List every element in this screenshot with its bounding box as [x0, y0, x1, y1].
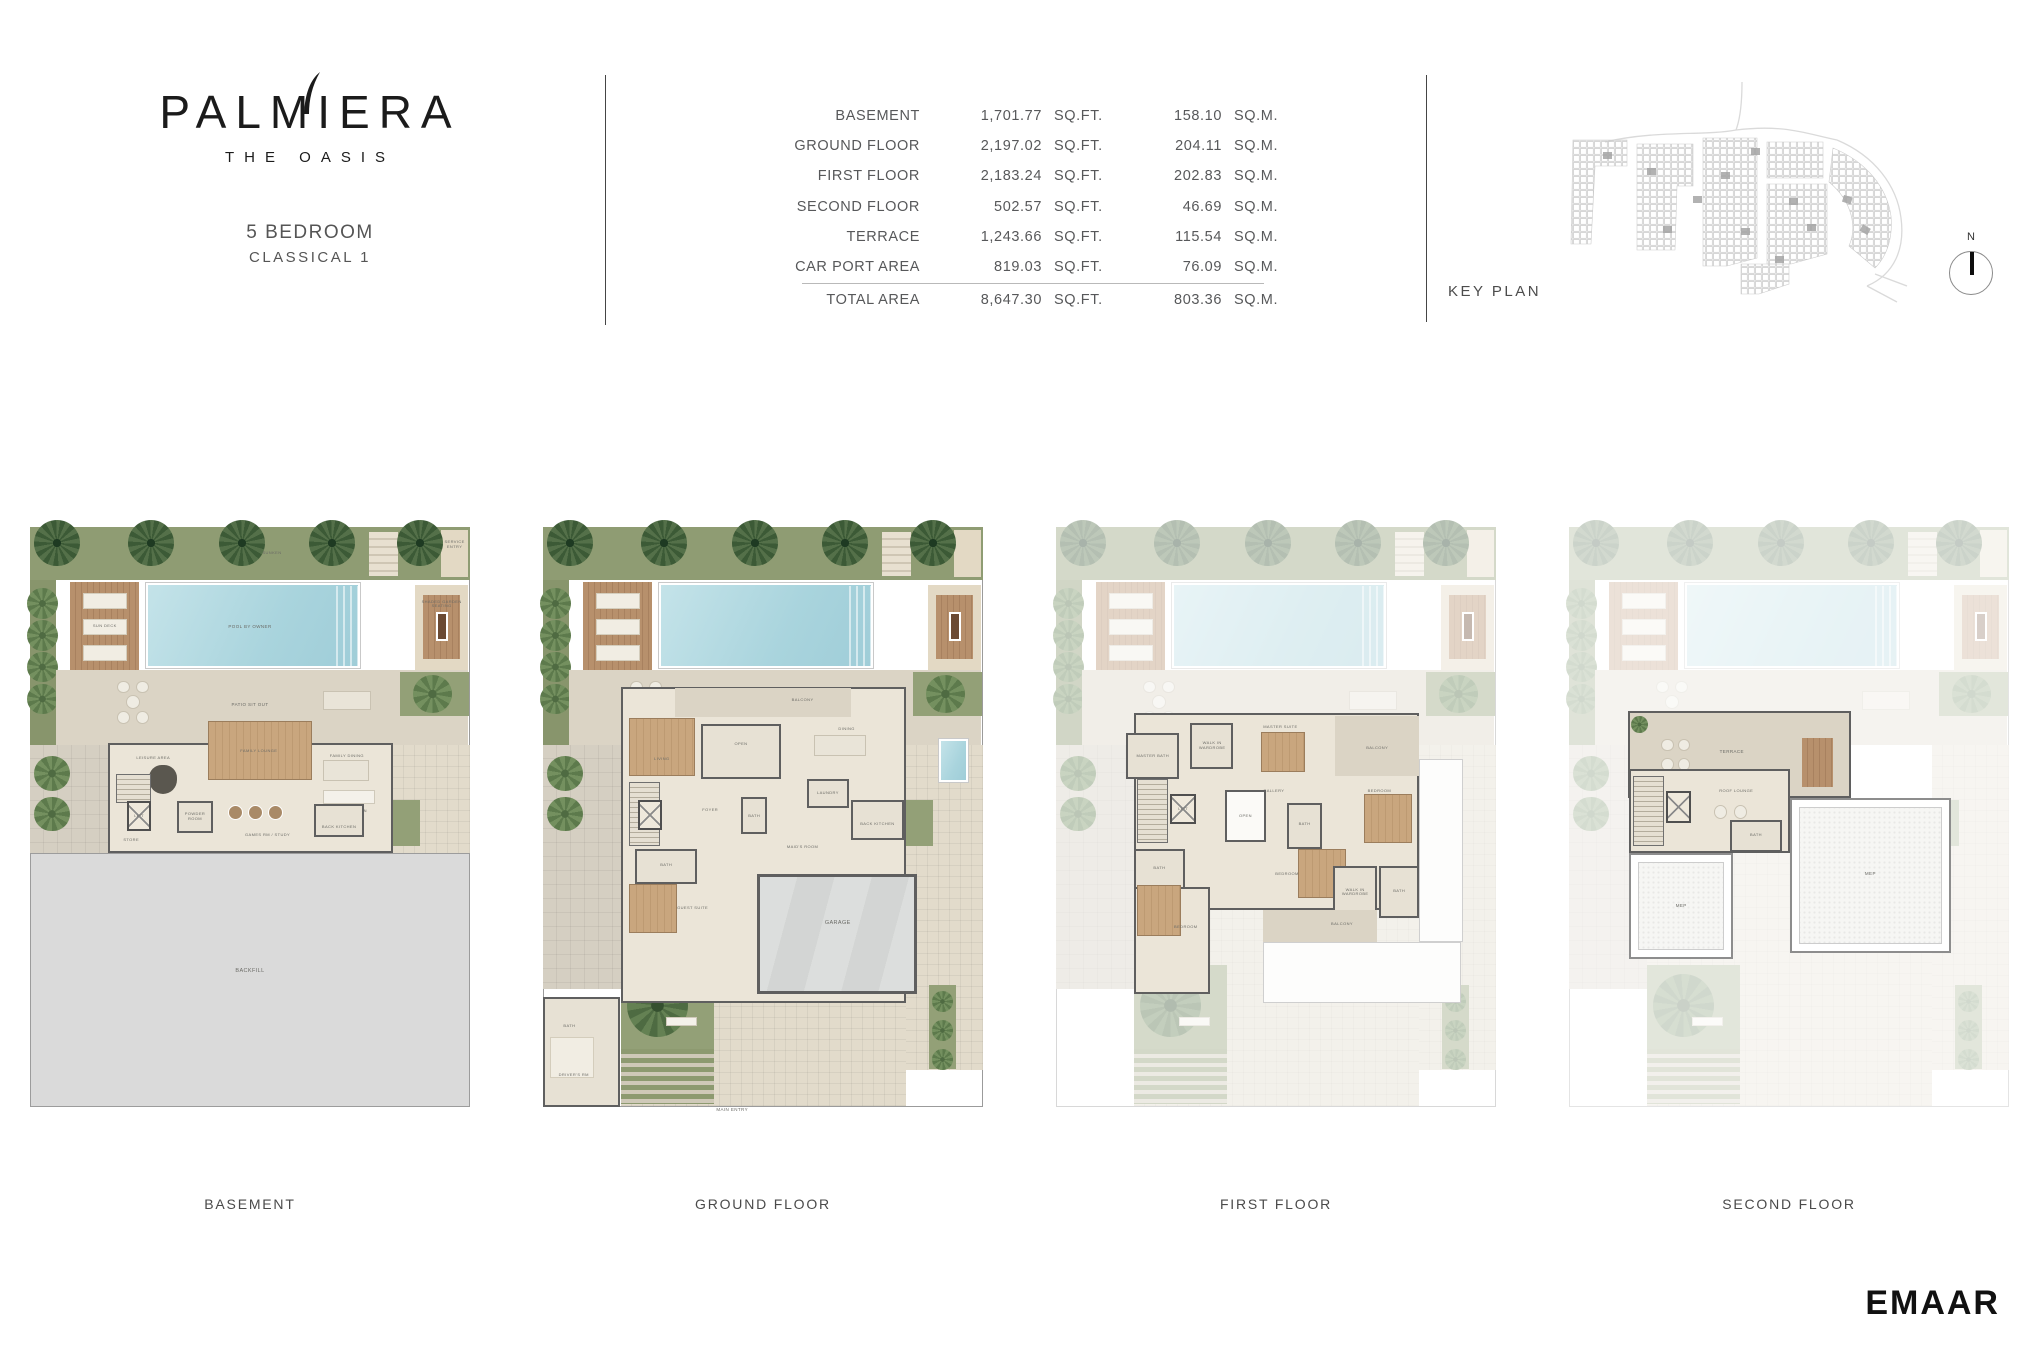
- label-pool: POOL BY OWNER: [206, 619, 294, 634]
- label-family-lounge: FAMILY LOUNGE: [224, 743, 294, 758]
- label-open: OPEN: [1225, 808, 1266, 823]
- area-sqft: 1,243.66: [920, 229, 1042, 245]
- bedroom-bed: [1364, 794, 1412, 843]
- floorplan-caption: FIRST FLOOR: [1056, 1196, 1496, 1212]
- terrace-dining-table: [1802, 738, 1833, 787]
- label-bath-mid-text: BATH: [1287, 817, 1322, 832]
- label-lift: LIFT: [1170, 803, 1196, 815]
- area-sqft-unit: SQ.FT.: [1042, 229, 1134, 245]
- compass-needle: [1970, 252, 1974, 275]
- label-guest-suite: GUEST SUITE: [662, 901, 724, 916]
- area-sqm: 158.10: [1134, 108, 1222, 124]
- area-sqft: 8,647.30: [920, 292, 1042, 308]
- label-back-kitchen: BACK KITCHEN: [314, 819, 365, 834]
- label-guest-suite-text: GUEST SUITE: [662, 901, 724, 916]
- floorplan-caption: BASEMENT: [30, 1196, 470, 1212]
- label-drivers-room: DRIVER'S RM: [547, 1068, 600, 1083]
- label-store-text: STORE: [111, 833, 151, 848]
- vertical-divider: [605, 75, 606, 325]
- label-mep-left: MEP: [1657, 898, 1705, 913]
- label-open: OPEN: [719, 737, 763, 752]
- staircase: [1633, 776, 1664, 846]
- label-shaded-seating: SHADED GARDEN SEATING: [415, 590, 467, 619]
- label-lift-text: LIFT: [127, 811, 152, 823]
- label-bath-right-text: BATH: [1382, 884, 1417, 899]
- label-balcony: BALCONY: [772, 693, 834, 708]
- unit-variant: CLASSICAL 1: [120, 249, 500, 266]
- lift: [638, 800, 663, 830]
- label-walk-in-2: WALK IN WARDROBE: [1335, 878, 1375, 907]
- label-bath-text: BATH: [1734, 827, 1778, 842]
- label-bath-left: BATH: [1137, 861, 1181, 876]
- area-label: FIRST FLOOR: [640, 168, 920, 184]
- area-row: FIRST FLOOR 2,183.24 SQ.FT. 202.83 SQ.M.: [640, 161, 1294, 191]
- label-annex-bath-text: BATH: [547, 1019, 591, 1034]
- area-label: SECOND FLOOR: [640, 199, 920, 215]
- label-roof-lounge-text: ROOF LOUNGE: [1701, 784, 1771, 799]
- label-bedroom-left: BEDROOM: [1157, 920, 1214, 935]
- staircase: [1137, 779, 1168, 843]
- area-label: GROUND FLOOR: [640, 138, 920, 154]
- label-games-room: GAMES RM / STUDY: [224, 827, 312, 842]
- label-leisure-area-text: LEISURE AREA: [118, 751, 188, 766]
- dining-table: [323, 760, 369, 781]
- core-layer: SUNKENSERVICE ENTRYSUN DECKPOOL BY OWNER…: [30, 527, 470, 1107]
- label-bath-text: BATH: [741, 808, 767, 823]
- area-row: CAR PORT AREA 819.03 SQ.FT. 76.09 SQ.M.: [640, 252, 1294, 282]
- label-sun-deck-text: SUN DECK: [81, 619, 129, 634]
- label-powder-room-text: POWDER ROOM: [177, 808, 212, 825]
- label-terrace: TERRACE: [1701, 744, 1763, 759]
- unit-block: 5 BEDROOM CLASSICAL 1: [120, 222, 500, 266]
- area-sqft-unit: SQ.FT.: [1042, 108, 1134, 124]
- core-layer: TERRACEROOF LOUNGEBATHMEPMEP: [1569, 527, 2009, 1107]
- vertical-divider: [1426, 75, 1427, 322]
- core-layer: BALCONYMASTER BATHWALK IN WARDROBEMASTER…: [1056, 527, 1496, 1107]
- floorplan-canvas-basement: SUNKENSERVICE ENTRYSUN DECKPOOL BY OWNER…: [30, 527, 470, 1107]
- area-sqft: 1,701.77: [920, 108, 1042, 124]
- roof-terrace: [1263, 942, 1461, 1003]
- area-label: CAR PORT AREA: [640, 259, 920, 275]
- area-sqm-unit: SQ.M.: [1222, 108, 1294, 124]
- label-roof-lounge: ROOF LOUNGE: [1701, 784, 1771, 799]
- unit-type: 5 BEDROOM: [120, 222, 500, 244]
- label-balcony: BALCONY: [1351, 740, 1404, 755]
- floorplan-canvas-ground-floor: BALCONYLIVINGOPENDININGFOYERLAUNDRYBATHM…: [543, 527, 983, 1107]
- label-living-text: LIVING: [633, 752, 690, 767]
- label-bath-left-text: BATH: [1137, 861, 1181, 876]
- key-plan-map: [1545, 78, 1925, 308]
- label-laundry-text: LAUNDRY: [807, 786, 849, 801]
- core-layer: BALCONYLIVINGOPENDININGFOYERLAUNDRYBATHM…: [543, 527, 983, 1107]
- area-sqft-unit: SQ.FT.: [1042, 199, 1134, 215]
- north-compass-icon: [1949, 251, 1993, 295]
- label-guest-bath: BATH: [635, 858, 697, 873]
- table-separator: [802, 283, 1264, 284]
- floorplan-caption: GROUND FLOOR: [543, 1196, 983, 1212]
- label-lift-text: LIFT: [1170, 803, 1196, 815]
- label-bath: BATH: [741, 808, 767, 823]
- master-bed: [1261, 732, 1305, 773]
- area-sqft: 819.03: [920, 259, 1042, 275]
- roof-band: [1419, 759, 1463, 942]
- label-store: STORE: [111, 833, 151, 848]
- label-foyer-text: FOYER: [684, 803, 737, 818]
- label-balcony-text: BALCONY: [1351, 740, 1404, 755]
- floorplan-basement: SUNKENSERVICE ENTRYSUN DECKPOOL BY OWNER…: [30, 527, 470, 1107]
- area-sqft: 502.57: [920, 199, 1042, 215]
- label-terrace-text: TERRACE: [1701, 744, 1763, 759]
- area-sqm: 803.36: [1134, 292, 1222, 308]
- label-guest-bath-text: BATH: [635, 858, 697, 873]
- label-leisure-area: LEISURE AREA: [118, 751, 188, 766]
- area-row: GROUND FLOOR 2,197.02 SQ.FT. 204.11 SQ.M…: [640, 131, 1294, 161]
- label-master-suite-text: MASTER SUITE: [1247, 720, 1313, 735]
- area-label: TOTAL AREA: [640, 292, 920, 308]
- area-sqm: 202.83: [1134, 168, 1222, 184]
- label-sunken: SUNKEN: [241, 546, 303, 561]
- area-sqm-unit: SQ.M.: [1222, 292, 1294, 308]
- area-sqft-unit: SQ.FT.: [1042, 138, 1134, 154]
- area-sqm-unit: SQ.M.: [1222, 259, 1294, 275]
- developer-logo: EMAAR: [1865, 1284, 2000, 1323]
- label-mep-left-text: MEP: [1657, 898, 1705, 913]
- label-patio: PATIO SIT OUT: [206, 697, 294, 712]
- area-sqft-unit: SQ.FT.: [1042, 168, 1134, 184]
- leaf-icon: [301, 72, 321, 114]
- brand-block: PALMIERA THE OASIS 5 BEDROOM CLASSICAL 1: [120, 85, 500, 266]
- label-bath-right: BATH: [1382, 884, 1417, 899]
- label-patio-text: PATIO SIT OUT: [206, 697, 294, 712]
- label-shaded-seating-text: SHADED GARDEN SEATING: [415, 590, 467, 619]
- label-walk-in-text: WALK IN WARDROBE: [1192, 731, 1232, 760]
- area-sqm: 115.54: [1134, 229, 1222, 245]
- label-bedroom-right: BEDROOM: [1351, 783, 1408, 798]
- logo-title: PALMIERA: [120, 85, 500, 139]
- label-mep-right-text: MEP: [1846, 866, 1894, 881]
- label-balcony-rear-text: BALCONY: [1311, 917, 1373, 932]
- label-mep-right: MEP: [1846, 866, 1894, 881]
- label-lift: LIFT: [127, 811, 152, 823]
- piano: [149, 765, 178, 794]
- label-open-text: OPEN: [1225, 808, 1266, 823]
- area-table: BASEMENT 1,701.77 SQ.FT. 158.10 SQ.M. GR…: [640, 101, 1294, 315]
- label-bedroom-mid: BEDROOM: [1258, 866, 1315, 881]
- floorplan-ground-floor: BALCONYLIVINGOPENDININGFOYERLAUNDRYBATHM…: [543, 527, 983, 1107]
- label-master-bath: MASTER BATH: [1129, 749, 1177, 764]
- label-powder-room: POWDER ROOM: [177, 808, 212, 825]
- floorplan-canvas-first-floor: BALCONYMASTER BATHWALK IN WARDROBEMASTER…: [1056, 527, 1496, 1107]
- label-master-suite: MASTER SUITE: [1247, 720, 1313, 735]
- area-total-row: TOTAL AREA 8,647.30 SQ.FT. 803.36 SQ.M.: [640, 285, 1294, 315]
- area-sqm-unit: SQ.M.: [1222, 168, 1294, 184]
- floorplan-caption: SECOND FLOOR: [1569, 1196, 2009, 1212]
- label-sun-deck: SUN DECK: [81, 619, 129, 634]
- label-bath: BATH: [1734, 827, 1778, 842]
- label-master-bath-text: MASTER BATH: [1129, 749, 1177, 764]
- area-sqm-unit: SQ.M.: [1222, 229, 1294, 245]
- label-living: LIVING: [633, 752, 690, 767]
- label-back-kitchen-text: BACK KITCHEN: [314, 819, 365, 834]
- staircase: [116, 774, 151, 803]
- logo-subtitle: THE OASIS: [120, 149, 500, 166]
- area-sqm: 76.09: [1134, 259, 1222, 275]
- area-sqm: 204.11: [1134, 138, 1222, 154]
- floorplan-second-floor: TERRACEROOF LOUNGEBATHMEPMEP SECOND FLOO…: [1569, 527, 2009, 1107]
- label-walk-in-2-text: WALK IN WARDROBE: [1335, 878, 1375, 907]
- label-backfill-text: BACKFILL: [184, 962, 316, 979]
- label-backfill: BACKFILL: [184, 962, 316, 979]
- label-games-room-text: GAMES RM / STUDY: [224, 827, 312, 842]
- plunge-pool: [939, 739, 968, 783]
- kitchen-island: [323, 790, 376, 804]
- area-sqm-unit: SQ.M.: [1222, 199, 1294, 215]
- label-back-kitchen: BACK KITCHEN: [851, 814, 904, 835]
- area-sqft-unit: SQ.FT.: [1042, 292, 1134, 308]
- label-family-lounge-text: FAMILY LOUNGE: [224, 743, 294, 758]
- label-balcony-rear: BALCONY: [1311, 917, 1373, 932]
- area-sqm-unit: SQ.M.: [1222, 138, 1294, 154]
- dining-table: [814, 735, 867, 756]
- brochure-page: PALMIERA THE OASIS 5 BEDROOM CLASSICAL 1…: [0, 0, 2040, 1360]
- label-main-entry-text: MAIN ENTRY: [688, 1102, 776, 1117]
- label-bedroom-left-text: BEDROOM: [1157, 920, 1214, 935]
- label-bedroom-mid-text: BEDROOM: [1258, 866, 1315, 881]
- label-annex-bath: BATH: [547, 1019, 591, 1034]
- label-sunken-text: SUNKEN: [241, 546, 303, 561]
- area-sqft: 2,197.02: [920, 138, 1042, 154]
- label-drivers-room-text: DRIVER'S RM: [547, 1068, 600, 1083]
- lift: [1666, 791, 1692, 823]
- backfill-area: [30, 853, 470, 1107]
- key-plan-label: KEY PLAN: [1448, 283, 1541, 300]
- label-pool-text: POOL BY OWNER: [206, 619, 294, 634]
- label-laundry: LAUNDRY: [807, 786, 849, 801]
- label-balcony-text: BALCONY: [772, 693, 834, 708]
- floorplan-canvas-second-floor: TERRACEROOF LOUNGEBATHMEPMEP: [1569, 527, 2009, 1107]
- label-main-entry: MAIN ENTRY: [688, 1102, 776, 1117]
- label-maids-room: MAID'S ROOM: [772, 840, 834, 855]
- label-maids-room-text: MAID'S ROOM: [772, 840, 834, 855]
- label-open-text: OPEN: [719, 737, 763, 752]
- area-row: BASEMENT 1,701.77 SQ.FT. 158.10 SQ.M.: [640, 101, 1294, 131]
- label-garage: GARAGE: [798, 914, 877, 931]
- area-label: BASEMENT: [640, 108, 920, 124]
- label-foyer: FOYER: [684, 803, 737, 818]
- area-row: TERRACE 1,243.66 SQ.FT. 115.54 SQ.M.: [640, 222, 1294, 252]
- area-sqft: 2,183.24: [920, 168, 1042, 184]
- label-back-kitchen-text: BACK KITCHEN: [851, 814, 904, 835]
- area-sqm: 46.69: [1134, 199, 1222, 215]
- floorplan-first-floor: BALCONYMASTER BATHWALK IN WARDROBEMASTER…: [1056, 527, 1496, 1107]
- label-garage-text: GARAGE: [798, 914, 877, 931]
- terrace-chair: [1661, 739, 1673, 752]
- label-bedroom-right-text: BEDROOM: [1351, 783, 1408, 798]
- games-table: [268, 805, 283, 820]
- terrace-plant: [1631, 716, 1648, 733]
- area-sqft-unit: SQ.FT.: [1042, 259, 1134, 275]
- area-label: TERRACE: [640, 229, 920, 245]
- garage: [757, 874, 917, 994]
- label-service-entry: SERVICE ENTRY: [437, 532, 472, 558]
- label-service-entry-text: SERVICE ENTRY: [437, 532, 472, 558]
- label-walk-in: WALK IN WARDROBE: [1192, 731, 1232, 760]
- living-floor: [629, 718, 695, 776]
- north-label: N: [1949, 231, 1993, 243]
- label-bath-mid: BATH: [1287, 817, 1322, 832]
- area-row: SECOND FLOOR 502.57 SQ.FT. 46.69 SQ.M.: [640, 192, 1294, 222]
